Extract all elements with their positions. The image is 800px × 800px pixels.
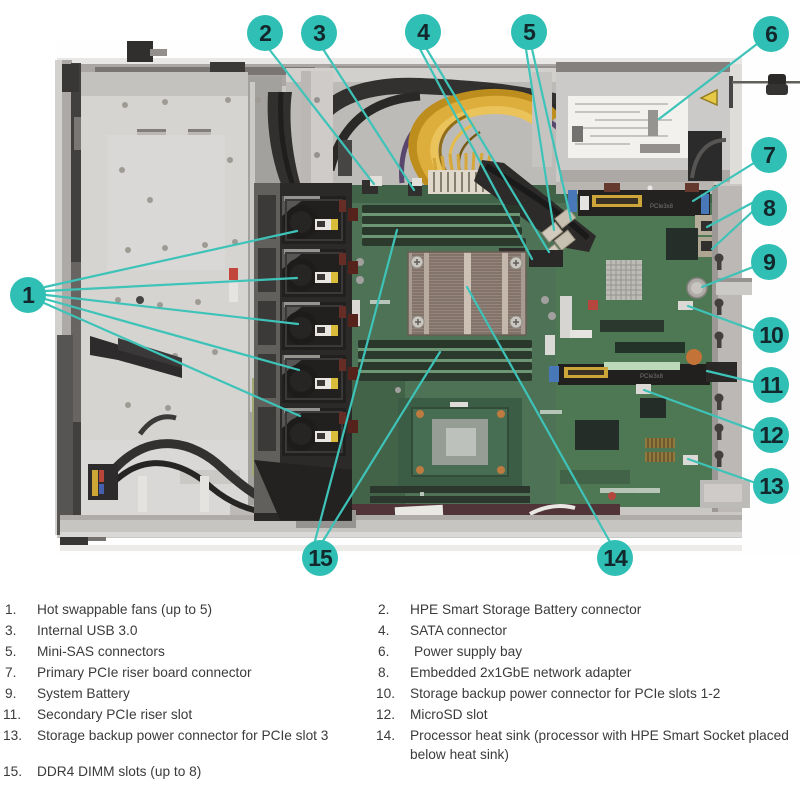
svg-text:1.: 1.: [5, 602, 16, 617]
svg-text:3: 3: [313, 20, 325, 46]
svg-text:Secondary PCIe riser slot: Secondary PCIe riser slot: [37, 707, 192, 722]
svg-text:Processor heat sink (processor: Processor heat sink (processor with HPE …: [410, 728, 789, 743]
svg-text:5: 5: [523, 19, 536, 45]
svg-text:10.: 10.: [376, 686, 395, 701]
svg-text:1: 1: [22, 282, 35, 308]
svg-text:9.: 9.: [5, 686, 16, 701]
svg-text:SATA connector: SATA connector: [410, 623, 507, 638]
svg-text:15.: 15.: [3, 764, 22, 779]
svg-text:Embedded 2x1GbE network adapte: Embedded 2x1GbE network adapter: [410, 665, 632, 680]
svg-text:2: 2: [259, 20, 271, 46]
svg-text:4.: 4.: [378, 623, 389, 638]
svg-text:Primary PCIe riser board conne: Primary PCIe riser board connector: [37, 665, 252, 680]
svg-text:Storage backup power connector: Storage backup power connector for PCIe …: [410, 686, 720, 701]
svg-text:Power supply bay: Power supply bay: [414, 644, 522, 659]
svg-text:11: 11: [760, 372, 784, 398]
svg-text:13: 13: [759, 473, 783, 499]
svg-text:10: 10: [759, 322, 783, 348]
svg-text:15: 15: [308, 545, 333, 571]
svg-text:11.: 11.: [3, 707, 21, 722]
svg-text:4: 4: [417, 19, 430, 45]
svg-text:Internal USB 3.0: Internal USB 3.0: [37, 623, 138, 638]
svg-text:Mini-SAS connectors: Mini-SAS connectors: [37, 644, 165, 659]
svg-text:6: 6: [765, 21, 777, 47]
svg-text:below heat sink): below heat sink): [410, 747, 509, 762]
svg-text:2.: 2.: [378, 602, 389, 617]
svg-text:DDR4 DIMM slots (up to 8): DDR4 DIMM slots (up to 8): [37, 764, 201, 779]
svg-text:8.: 8.: [378, 665, 389, 680]
svg-text:7: 7: [763, 142, 775, 168]
svg-text:14.: 14.: [376, 728, 395, 743]
svg-text:7.: 7.: [5, 665, 16, 680]
svg-text:12.: 12.: [376, 707, 395, 722]
svg-text:14: 14: [603, 545, 628, 571]
svg-text:3.: 3.: [5, 623, 16, 638]
svg-text:9: 9: [763, 249, 775, 275]
svg-text:Storage backup power connector: Storage backup power connector for PCIe …: [37, 728, 329, 743]
svg-text:System Battery: System Battery: [37, 686, 130, 701]
svg-text:12: 12: [759, 422, 783, 448]
svg-text:MicroSD slot: MicroSD slot: [410, 707, 488, 722]
svg-text:HPE Smart Storage Battery conn: HPE Smart Storage Battery connector: [410, 602, 642, 617]
svg-text:Hot swappable fans (up to 5): Hot swappable fans (up to 5): [37, 602, 212, 617]
svg-text:6.: 6.: [378, 644, 389, 659]
svg-text:5.: 5.: [5, 644, 16, 659]
svg-text:8: 8: [763, 195, 776, 221]
svg-text:13.: 13.: [3, 728, 22, 743]
